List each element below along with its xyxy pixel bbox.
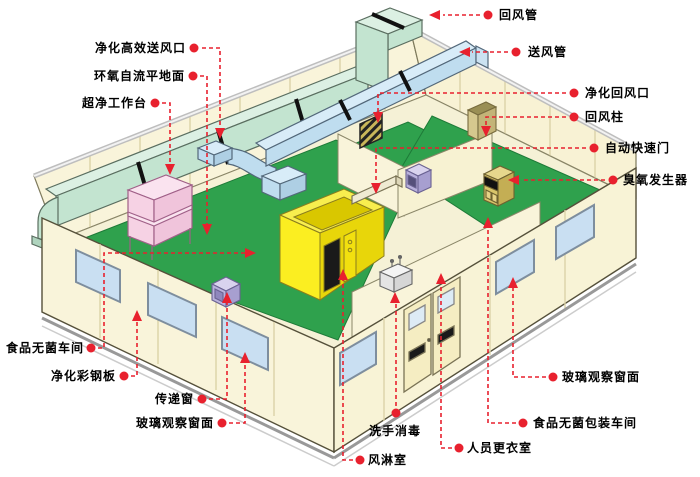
label-hepa-supply-air-outlet: 净化高效送风口 [95, 41, 186, 55]
label-return-air-column: 回风柱 [585, 110, 624, 124]
label-purification-color-steel-panel: 净化彩钢板 [51, 369, 116, 383]
label-glass-observation-window-right: 玻璃观察窗面 [562, 370, 640, 384]
label-personnel-changing-room: 人员更衣室 [467, 441, 532, 455]
label-automatic-fast-door: 自动快速门 [605, 141, 670, 155]
air-shower-doorway [324, 238, 340, 292]
label-glass-observation-window-left: 玻璃观察窗面 [136, 416, 214, 430]
label-supply-air-duct: 送风管 [528, 45, 567, 59]
label-epoxy-self-leveling-floor: 环氧自流平地面 [94, 69, 185, 83]
label-ultra-clean-workbench: 超净工作台 [82, 96, 147, 110]
label-hand-wash-disinfection: 洗手消毒 [369, 424, 421, 438]
label-return-air-duct: 回风管 [499, 8, 538, 22]
label-food-sterile-workshop: 食品无菌车间 [6, 341, 84, 355]
cleanroom-isometric-diagram: 回风管 送风管 净化回风口 回风柱 自动快速门 臭氧发生器 净化高效送风口 环氧… [0, 0, 700, 477]
label-air-shower-room: 风淋室 [368, 453, 407, 467]
label-purified-return-air-inlet: 净化回风口 [585, 86, 650, 100]
label-transfer-window: 传递窗 [155, 392, 194, 406]
ozone-generator [484, 166, 514, 206]
transfer-window-box-2 [406, 164, 431, 193]
label-ozone-generator: 臭氧发生器 [623, 173, 688, 187]
label-food-sterile-packaging-workshop: 食品无菌包装车间 [533, 416, 637, 430]
air-shower-panel [344, 230, 356, 282]
